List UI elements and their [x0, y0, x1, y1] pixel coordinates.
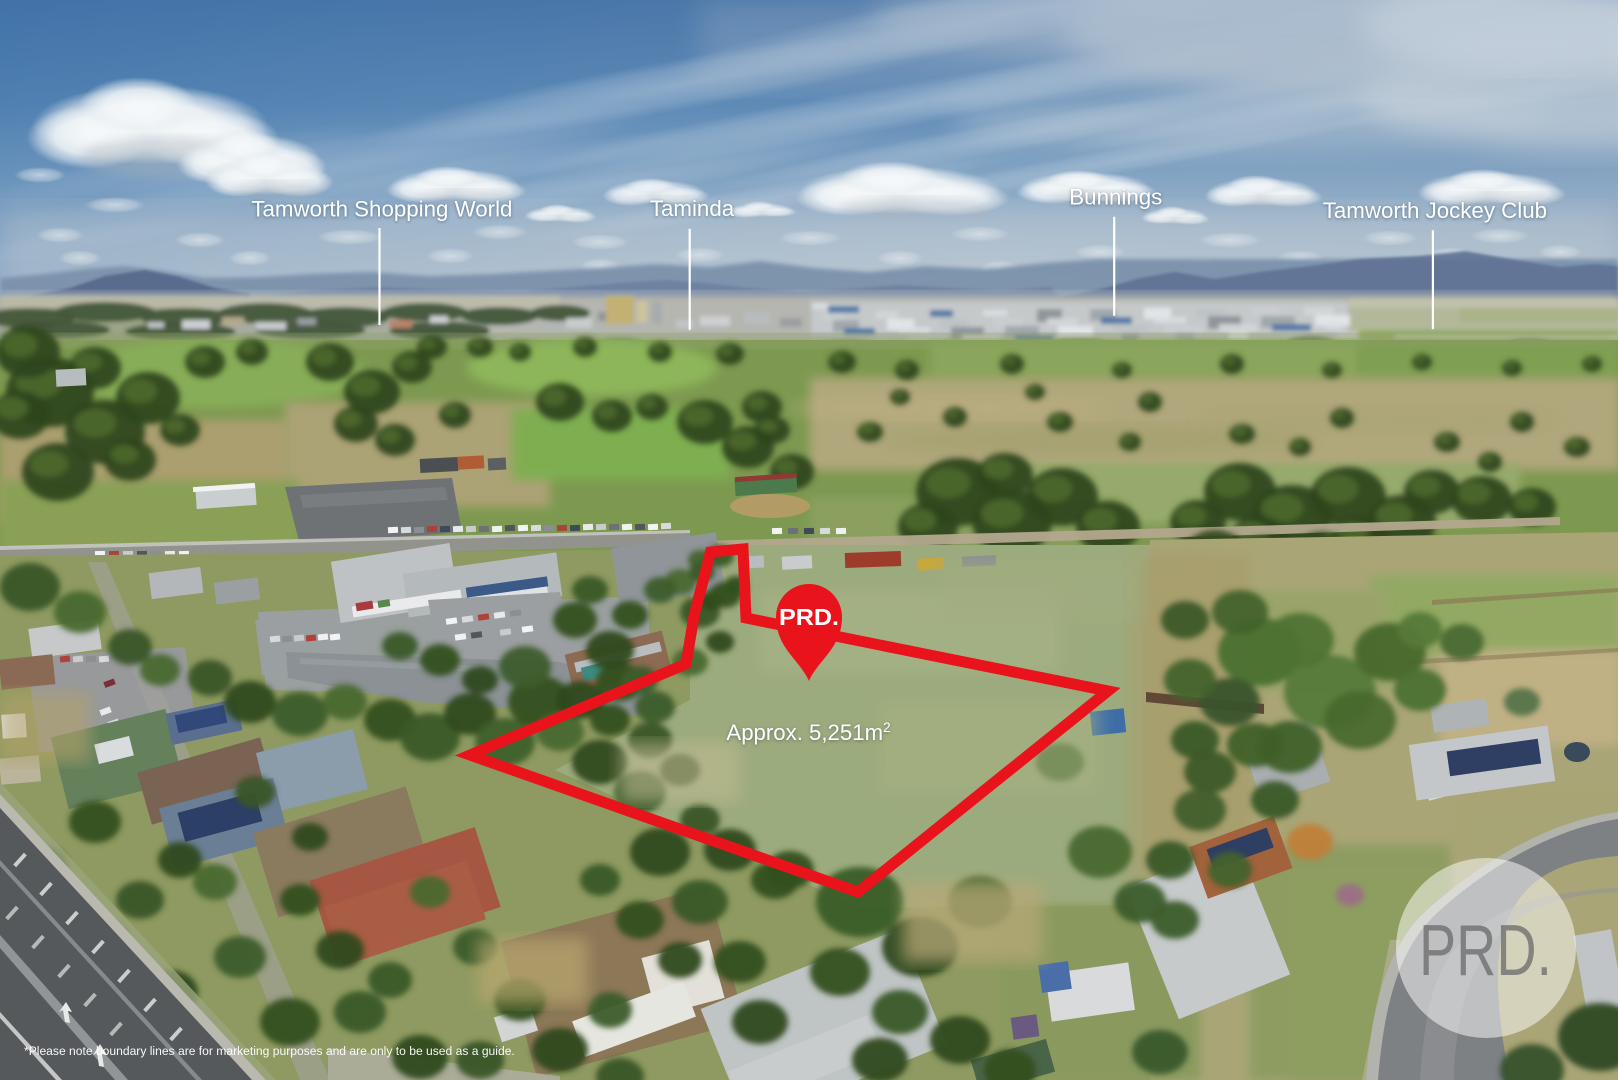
svg-text:Tamworth Shopping World: Tamworth Shopping World [251, 197, 512, 222]
svg-text:Tamworth Jockey Club: Tamworth Jockey Club [1323, 198, 1547, 223]
svg-text:Taminda: Taminda [650, 196, 735, 221]
svg-text:PRD.: PRD. [1419, 911, 1552, 991]
svg-text:Bunnings: Bunnings [1069, 185, 1162, 210]
svg-text:*Please note boundary lines ar: *Please note boundary lines are for mark… [24, 1044, 515, 1058]
svg-text:PRD.: PRD. [779, 604, 839, 630]
svg-text:Approx. 5,251m2: Approx. 5,251m2 [726, 720, 890, 745]
